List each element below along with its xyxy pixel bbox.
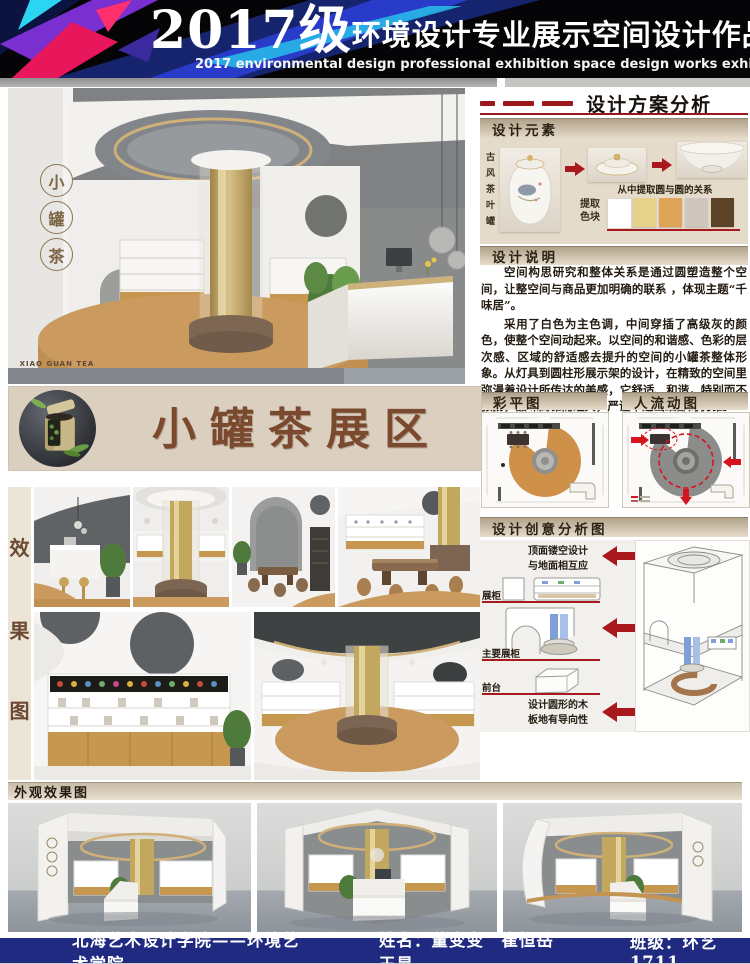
palette-swatch — [633, 198, 656, 227]
arrow-right-icon — [565, 162, 585, 176]
description-paragraph-1: 空间构思研究和整体关系是通过圆塑造整个空间，让整空间与商品更加明确的联系 ，体现… — [481, 264, 747, 314]
section-header-description: 设计说明 — [480, 246, 748, 265]
palette-swatch — [711, 198, 734, 227]
poster-title: 2017级环境设计专业展示空间设计作品展 — [150, 2, 750, 60]
poster-title-cn: 环境设计专业展示空间设计作品展 — [352, 18, 750, 52]
main-render-image: 小 罐 茶 XIAO GUAN TEA — [8, 88, 465, 384]
section-header-creative: 设计创意分析图 — [480, 517, 748, 537]
render-thumb-tea-area — [338, 487, 480, 607]
title-underline — [480, 113, 748, 115]
flow-plan-image — [622, 412, 750, 508]
section-header-elements: 设计元素 — [480, 118, 748, 139]
relation-caption: 从中提取圆与圆的关系 — [585, 182, 745, 196]
palette-swatch — [607, 198, 632, 229]
exterior-render-2 — [257, 803, 497, 932]
logo-char-small: 小 — [40, 164, 73, 197]
dash-icon — [503, 101, 534, 106]
effects-char-1: 效 — [8, 532, 31, 561]
render-thumb-gold-column — [133, 487, 229, 607]
palette-swatch — [659, 198, 682, 227]
jar-lid-image — [588, 148, 646, 182]
logo-char-2: 罐 — [48, 206, 64, 230]
rule — [482, 601, 600, 603]
color-plan-image — [481, 412, 609, 508]
ancient-tea-jar-label: 古风茶叶罐 — [483, 152, 496, 232]
creative-note-top: 顶面镂空设计 与地面相互应 — [515, 544, 601, 574]
render-thumb-room-center — [254, 612, 480, 780]
palette-label: 提取 色块 — [580, 198, 600, 224]
gold-cylinder-display — [189, 150, 273, 353]
footer-school: 北海艺术设计学院——环境艺术学院 — [72, 927, 317, 964]
exterior-render-3 — [503, 803, 742, 932]
header-divider-right — [505, 78, 750, 87]
exterior-render-1 — [8, 803, 251, 932]
poster-root: 2017级环境设计专业展示空间设计作品展 2017 environmental … — [0, 0, 750, 964]
bowl-image — [677, 142, 747, 178]
header-divider-left — [0, 78, 497, 87]
logo-char-jar: 罐 — [40, 201, 73, 234]
section-header-flow-plan: 人流动图 — [622, 392, 748, 410]
arrow-right-icon — [652, 158, 672, 172]
analysis-title-row: 设计方案分析 — [480, 90, 748, 112]
render-thumb-reception — [34, 487, 130, 607]
banner: 小罐茶展区 — [8, 386, 482, 471]
front-desk-label: 前台 — [482, 680, 501, 694]
effects-char-3: 图 — [8, 695, 31, 724]
logo-char-3: 茶 — [48, 243, 64, 267]
tea-jar-image — [500, 148, 560, 232]
exterior-section-header: 外观效果图 — [8, 782, 742, 800]
footer-names: 姓名：董变变 崔恒岳 王昊 — [379, 927, 578, 964]
logo-char-tea: 茶 — [40, 238, 73, 271]
logo-char-1: 小 — [48, 169, 64, 193]
effects-label-strip: 效 果 图 — [8, 487, 31, 780]
tea-can-photo — [19, 390, 96, 467]
main-render-scene — [8, 88, 465, 384]
desk-computer — [386, 248, 412, 266]
dash-icon — [542, 101, 573, 106]
poster-header: 2017级环境设计专业展示空间设计作品展 2017 environmental … — [0, 0, 750, 78]
palette-swatch — [685, 198, 708, 227]
rule — [482, 693, 600, 695]
axonometric-sketch — [635, 540, 750, 732]
display-cabinet-label: 展柜 — [482, 588, 501, 602]
section-header-color-plan: 彩平图 — [481, 392, 607, 410]
effects-char-2: 果 — [8, 615, 31, 644]
main-cabinet-label: 主要展柜 — [482, 646, 520, 660]
poster-title-en: 2017 environmental design professional e… — [195, 57, 740, 72]
footer-class: 班级：环艺1711 — [630, 929, 750, 964]
design-elements-body: 古风茶叶罐 — [480, 138, 748, 244]
banner-title: 小罐茶展区 — [117, 393, 477, 457]
render-thumb-shelf-wall — [34, 612, 251, 780]
front-desk-sketch — [532, 664, 584, 696]
render-thumb-arch-table — [232, 487, 335, 607]
logo-english: XIAO GUAN TEA — [14, 360, 100, 368]
rule — [482, 659, 600, 661]
poster-title-year: 2017级 — [150, 0, 352, 61]
display-cabinet-sketch — [502, 576, 602, 602]
creative-analysis-body: 顶面镂空设计 与地面相互应 展柜 主要展柜 — [480, 540, 748, 732]
dash-icon — [480, 101, 495, 106]
footer-bar: 北海艺术设计学院——环境艺术学院 姓名：董变变 崔恒岳 王昊 班级：环艺1711 — [0, 938, 750, 963]
creative-note-bottom: 设计圆形的木 板地有导向性 — [515, 698, 601, 728]
palette-underline — [607, 229, 740, 231]
